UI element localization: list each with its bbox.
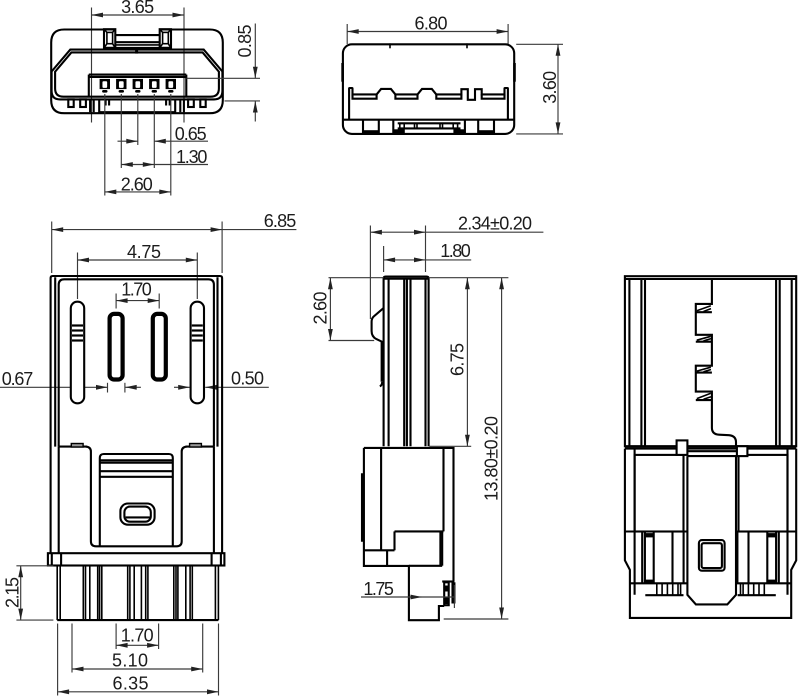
svg-text:0.67: 0.67 <box>2 369 34 389</box>
svg-text:4.75: 4.75 <box>127 242 161 262</box>
svg-text:0.65: 0.65 <box>175 124 207 144</box>
svg-text:6.75: 6.75 <box>447 343 467 376</box>
svg-text:1.30: 1.30 <box>176 147 208 167</box>
svg-text:3.60: 3.60 <box>540 71 560 104</box>
svg-text:2.60: 2.60 <box>121 174 153 194</box>
svg-text:13.80±0.20: 13.80±0.20 <box>482 416 502 501</box>
svg-text:2.60: 2.60 <box>310 292 330 325</box>
svg-text:1.80: 1.80 <box>440 241 471 261</box>
svg-text:6.35: 6.35 <box>113 673 149 693</box>
svg-text:0.50: 0.50 <box>231 369 264 389</box>
svg-text:1.70: 1.70 <box>121 279 152 299</box>
svg-text:1.75: 1.75 <box>363 579 394 599</box>
svg-text:6.85: 6.85 <box>264 211 297 231</box>
svg-text:2.34±0.20: 2.34±0.20 <box>458 213 532 233</box>
svg-text:1.70: 1.70 <box>121 626 154 646</box>
svg-text:2.15: 2.15 <box>2 577 22 608</box>
svg-text:5.10: 5.10 <box>112 650 148 670</box>
svg-text:6.80: 6.80 <box>415 13 448 33</box>
svg-text:3.65: 3.65 <box>121 0 154 17</box>
svg-text:0.85: 0.85 <box>235 25 255 58</box>
